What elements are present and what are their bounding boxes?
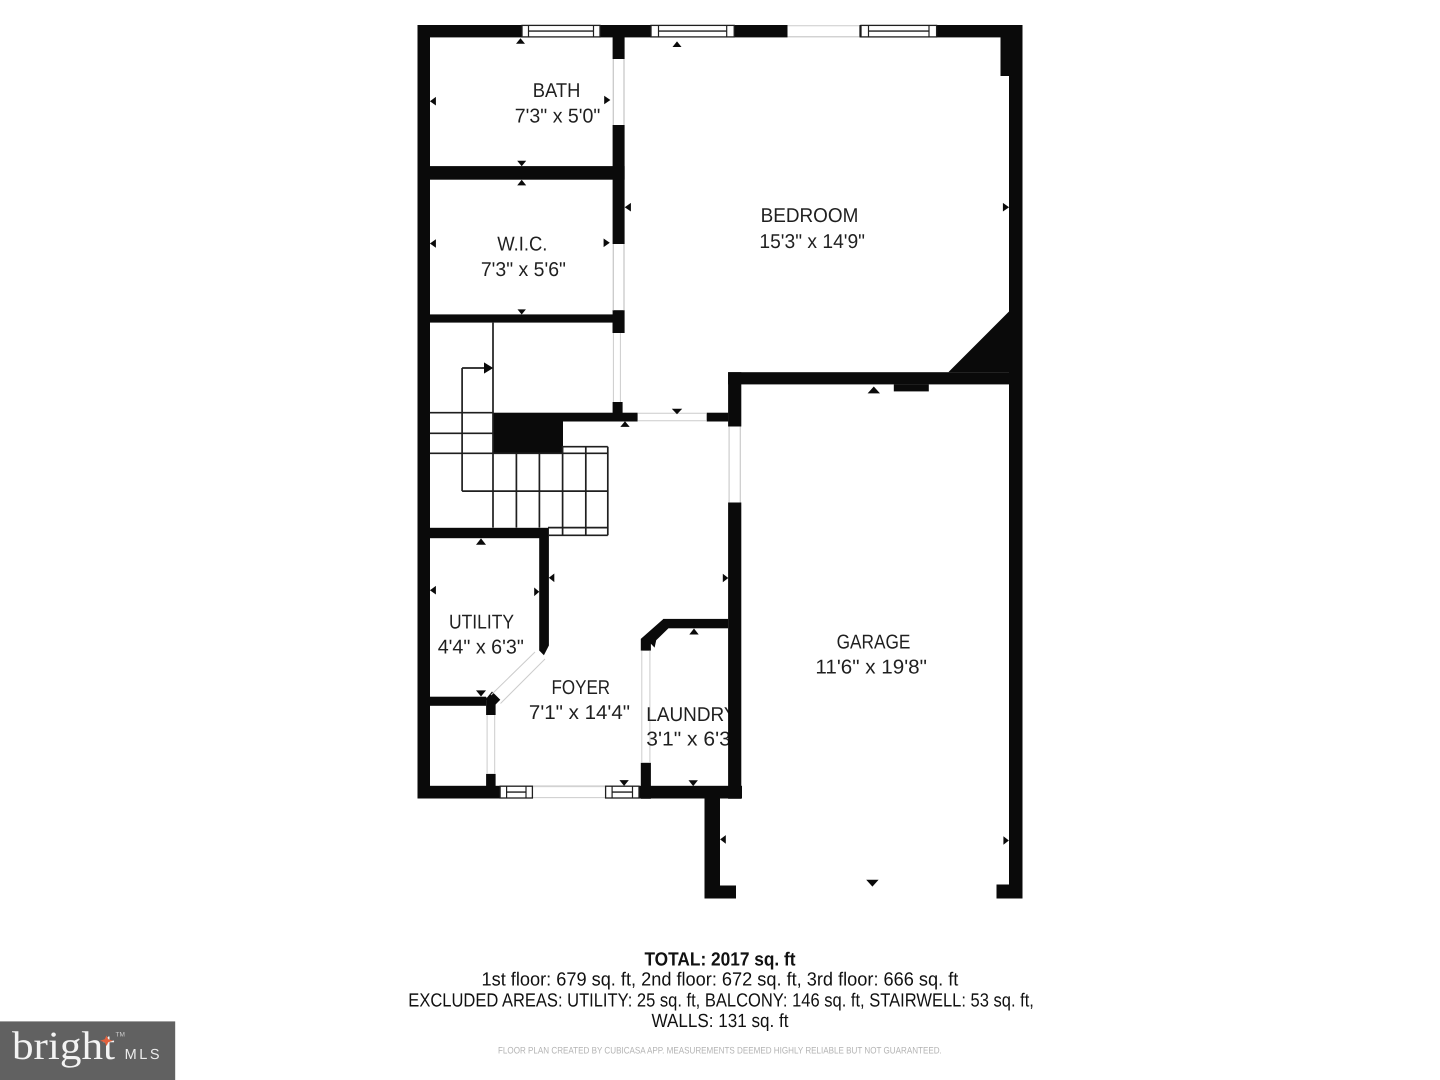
svg-text:W.I.C.: W.I.C. (497, 234, 547, 256)
svg-text:TM: TM (116, 1032, 125, 1039)
svg-text:bright: bright (12, 1023, 115, 1068)
svg-text:3'1" x 6'3": 3'1" x 6'3" (646, 729, 738, 751)
svg-text:FLOOR PLAN CREATED BY CUBICASA: FLOOR PLAN CREATED BY CUBICASA APP. MEAS… (498, 1045, 942, 1056)
svg-text:7'3" x 5'6": 7'3" x 5'6" (481, 259, 566, 281)
svg-text:BATH: BATH (533, 80, 581, 102)
svg-text:BEDROOM: BEDROOM (761, 205, 859, 227)
svg-text:4'4" x 6'3": 4'4" x 6'3" (438, 637, 524, 659)
svg-text:LAUNDRY: LAUNDRY (646, 704, 736, 726)
svg-text:WALLS: 131 sq. ft: WALLS: 131 sq. ft (652, 1011, 790, 1032)
svg-text:7'3" x 5'0": 7'3" x 5'0" (515, 106, 601, 128)
svg-text:GARAGE: GARAGE (837, 632, 911, 654)
svg-text:15'3" x 14'9": 15'3" x 14'9" (759, 231, 865, 253)
svg-text:11'6" x 19'8": 11'6" x 19'8" (815, 657, 927, 679)
svg-text:EXCLUDED AREAS: UTILITY: 25 sq: EXCLUDED AREAS: UTILITY: 25 sq. ft, BALC… (408, 991, 1034, 1012)
svg-text:7'1" x 14'4": 7'1" x 14'4" (529, 702, 630, 724)
svg-text:UTILITY: UTILITY (449, 612, 514, 634)
svg-text:TOTAL: 2017 sq. ft: TOTAL: 2017 sq. ft (644, 949, 796, 970)
svg-text:1st floor: 679 sq. ft, 2nd flo: 1st floor: 679 sq. ft, 2nd floor: 672 sq… (482, 970, 959, 991)
svg-text:FOYER: FOYER (552, 677, 611, 699)
svg-text:MLS: MLS (125, 1047, 163, 1063)
